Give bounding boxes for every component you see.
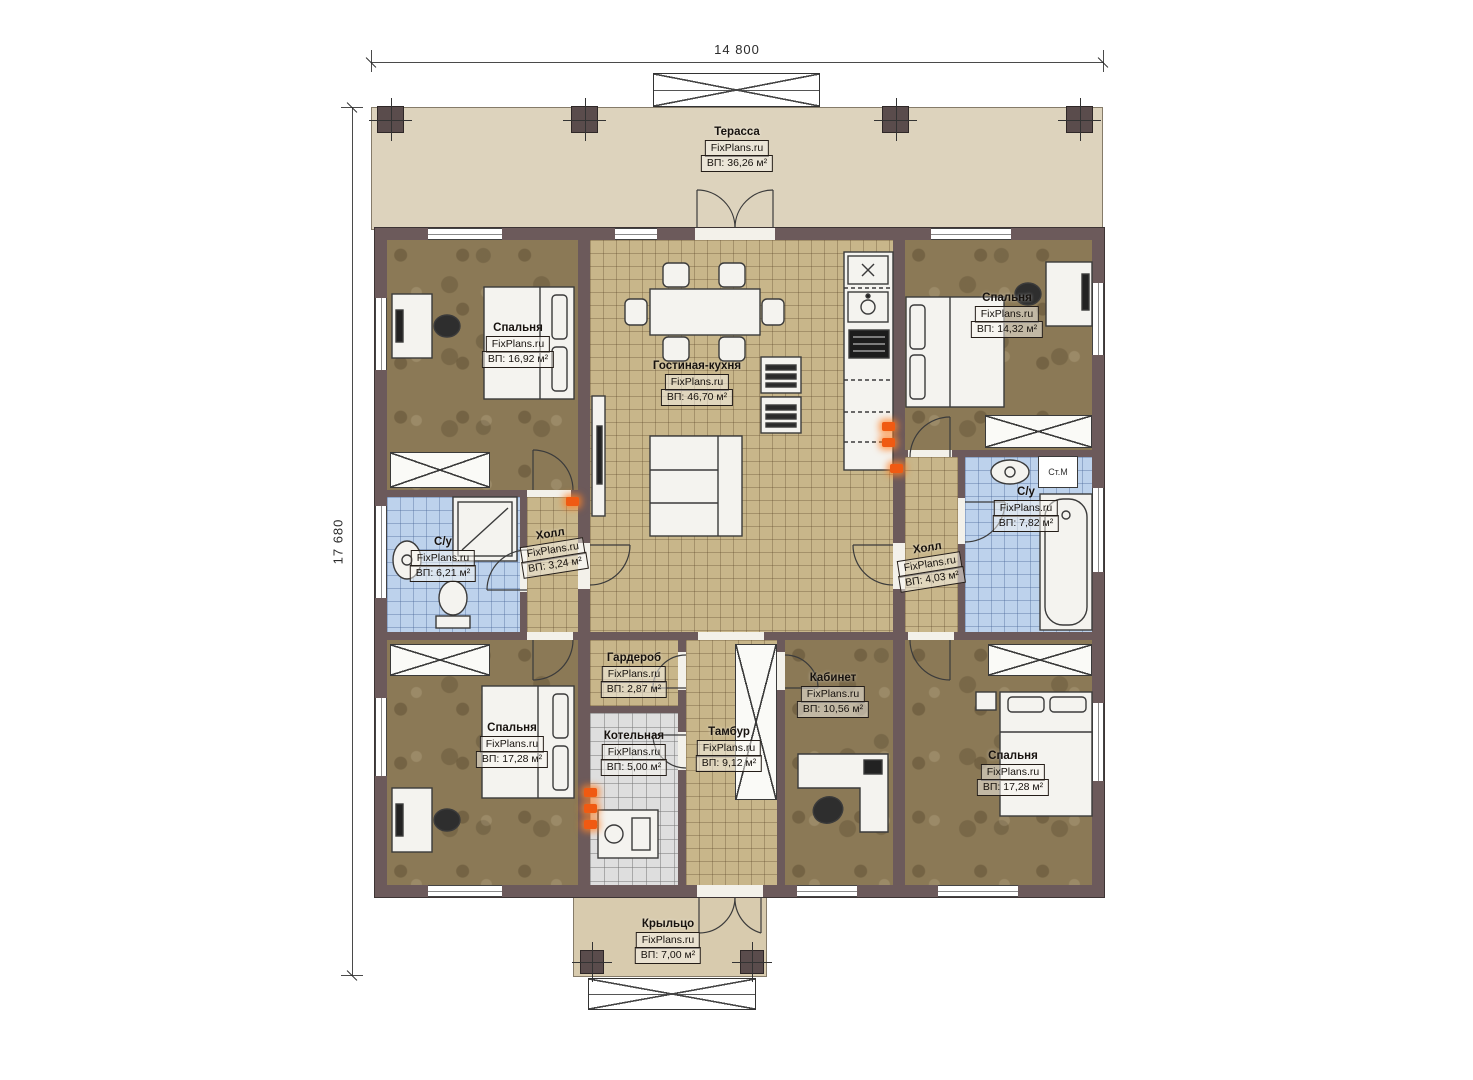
room-name: Гостиная-кухня — [653, 360, 741, 372]
room-name: С/у — [1017, 486, 1035, 498]
door-opening — [908, 450, 952, 457]
room-name: Кабинет — [810, 672, 857, 684]
room-label-bedroom-br: Спальня FixPlans.ru ВП: 17,28 м² — [977, 750, 1049, 796]
room-name: Котельная — [604, 730, 664, 742]
room-label-bedroom-bl: Спальня FixPlans.ru ВП: 17,28 м² — [476, 722, 548, 768]
canopy-bottom — [588, 978, 756, 1010]
socket-marker — [882, 438, 895, 447]
room-area: ВП: 5,00 м² — [601, 759, 667, 776]
door-opening — [678, 652, 686, 690]
dimension-height-label: 17 680 — [330, 519, 345, 565]
washing-machine-label: Ст.М — [1048, 467, 1068, 477]
socket-marker — [566, 497, 579, 506]
room-area: ВП: 6,21 м² — [410, 565, 476, 582]
window — [938, 885, 1018, 897]
door-opening — [777, 652, 785, 690]
room-label-bath-l: С/у FixPlans.ru ВП: 6,21 м² — [410, 536, 476, 582]
room-area: ВП: 14,32 м² — [971, 321, 1043, 338]
room-area: ВП: 7,00 м² — [635, 947, 701, 964]
window — [375, 698, 387, 776]
door-opening — [527, 632, 573, 640]
room-area: ВП: 16,92 м² — [482, 351, 554, 368]
room-label-bedroom-tr: Спальня FixPlans.ru ВП: 14,32 м² — [971, 292, 1043, 338]
washing-machine: Ст.М — [1038, 456, 1078, 488]
room-name: С/у — [434, 536, 452, 548]
door-opening — [908, 632, 954, 640]
room-area: ВП: 17,28 м² — [977, 779, 1049, 796]
door-opening — [698, 632, 764, 640]
room-area: ВП: 36,26 м² — [701, 155, 773, 172]
door-opening — [678, 732, 686, 770]
room-name: Спальня — [982, 292, 1032, 304]
room-name: Терасса — [714, 126, 760, 138]
window — [428, 885, 502, 897]
socket-marker — [584, 820, 597, 829]
window — [931, 228, 1011, 240]
terrace-column — [1066, 106, 1093, 133]
room-name: Спальня — [487, 722, 537, 734]
closet — [988, 644, 1092, 676]
canopy-top — [653, 73, 820, 107]
socket-marker — [890, 464, 903, 473]
porch-column — [580, 950, 604, 974]
dimension-line-left — [352, 107, 353, 975]
room-area: ВП: 9,12 м² — [696, 755, 762, 772]
room-name: Крыльцо — [642, 918, 694, 930]
room-label-living: Гостиная-кухня FixPlans.ru ВП: 46,70 м² — [653, 360, 741, 406]
room-living-kitchen — [590, 240, 893, 632]
entrance-door-opening — [697, 885, 763, 897]
room-name: Тамбур — [708, 726, 750, 738]
terrace-column — [377, 106, 404, 133]
room-area: ВП: 46,70 м² — [661, 389, 733, 406]
terrace-column — [882, 106, 909, 133]
socket-marker — [584, 804, 597, 813]
room-name: Спальня — [493, 322, 543, 334]
socket-marker — [584, 788, 597, 797]
room-label-tambour: Тамбур FixPlans.ru ВП: 9,12 м² — [696, 726, 762, 772]
closet — [390, 452, 490, 488]
room-name: Гардероб — [607, 652, 661, 664]
window — [615, 228, 657, 240]
window — [375, 298, 387, 370]
window — [1092, 283, 1104, 355]
window — [1092, 703, 1104, 781]
room-label-terrace: Терасса FixPlans.ru ВП: 36,26 м² — [701, 126, 773, 172]
room-area: ВП: 7,82 м² — [993, 515, 1059, 532]
room-area: ВП: 10,56 м² — [797, 701, 869, 718]
closet-tambour — [735, 644, 777, 800]
window — [375, 506, 387, 598]
closet — [985, 415, 1092, 448]
window — [428, 228, 502, 240]
closet — [390, 644, 490, 676]
floor-plan: 14 800 17 680 — [0, 0, 1473, 1080]
window — [797, 885, 857, 897]
room-label-boiler: Котельная FixPlans.ru ВП: 5,00 м² — [601, 730, 667, 776]
porch-column — [740, 950, 764, 974]
room-label-porch: Крыльцо FixPlans.ru ВП: 7,00 м² — [635, 918, 701, 964]
room-label-bath-r: С/у FixPlans.ru ВП: 7,82 м² — [993, 486, 1059, 532]
room-label-office: Кабинет FixPlans.ru ВП: 10,56 м² — [797, 672, 869, 718]
door-opening — [527, 490, 571, 497]
terrace-door-opening — [695, 228, 775, 240]
socket-marker — [882, 422, 895, 431]
window — [1092, 488, 1104, 572]
dimension-line-top — [371, 62, 1103, 63]
room-name: Спальня — [988, 750, 1038, 762]
room-area: ВП: 2,87 м² — [601, 681, 667, 698]
dimension-width-label: 14 800 — [714, 42, 760, 57]
room-label-wardrobe: Гардероб FixPlans.ru ВП: 2,87 м² — [601, 652, 667, 698]
room-label-bedroom-tl: Спальня FixPlans.ru ВП: 16,92 м² — [482, 322, 554, 368]
room-area: ВП: 17,28 м² — [476, 751, 548, 768]
terrace-column — [571, 106, 598, 133]
